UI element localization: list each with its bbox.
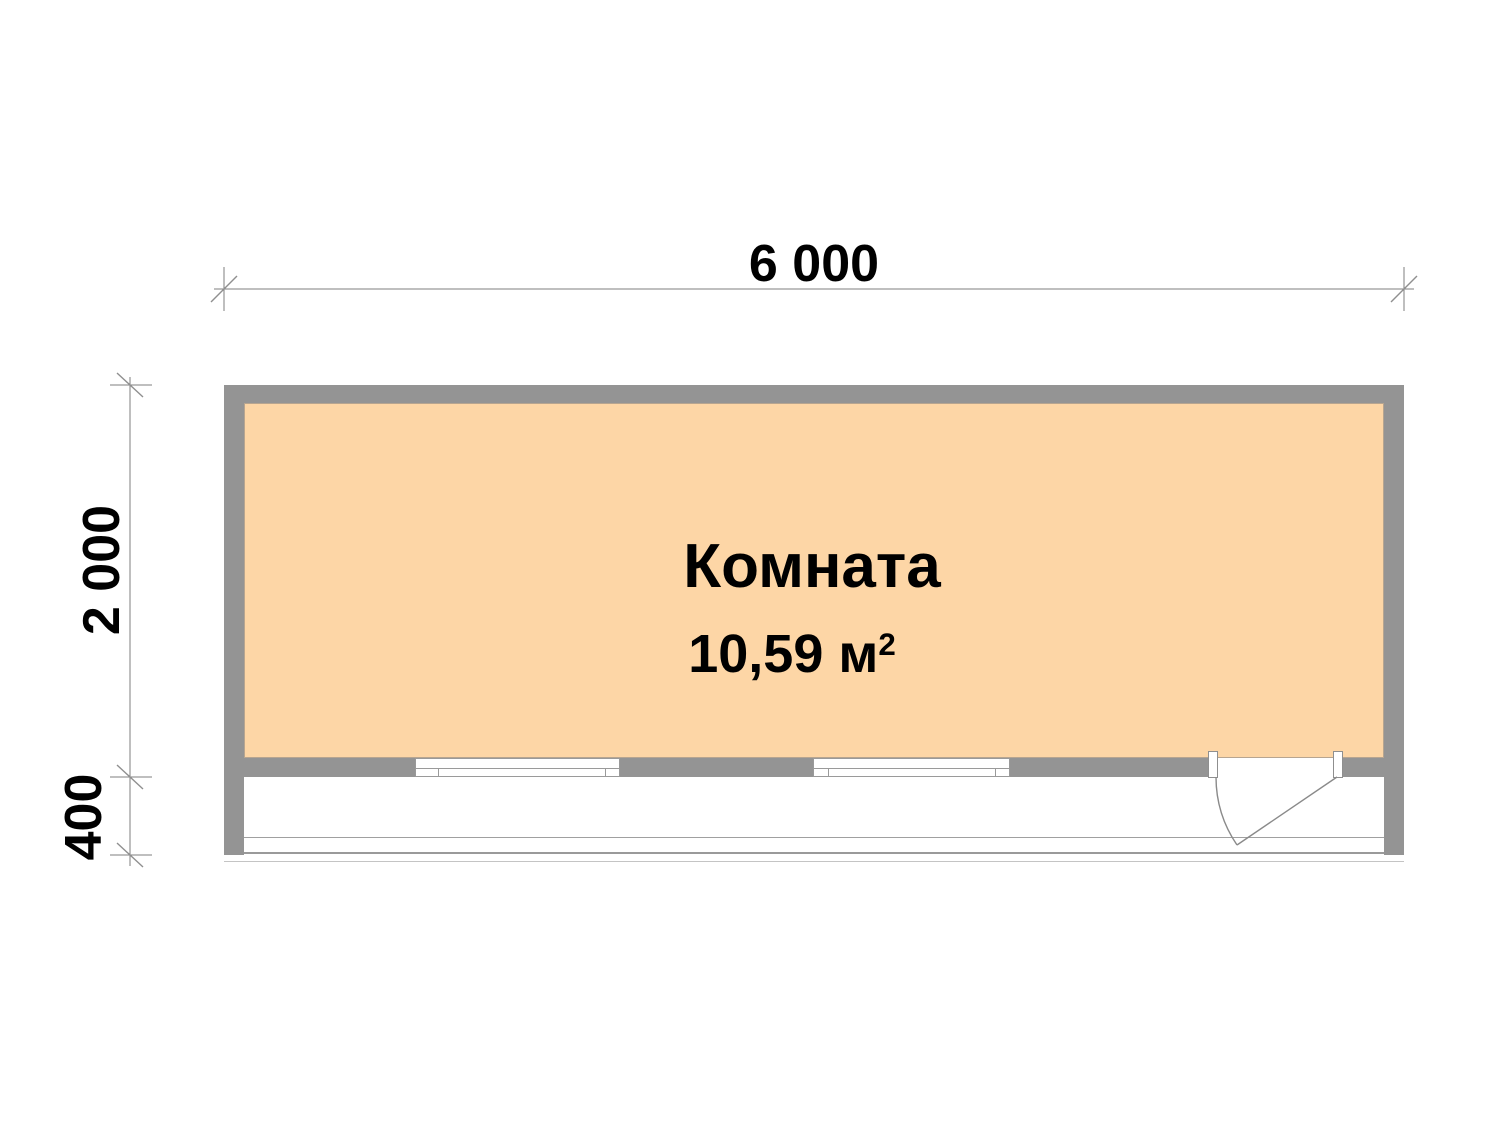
floor-plan-canvas: 6 000 2 000 400 Комната 10,59 м2 <box>0 0 1500 1125</box>
door-swing <box>1216 777 1337 845</box>
room-name-label: Комната <box>683 536 941 598</box>
room-area-superscript: 2 <box>878 627 895 662</box>
room-area-value: 10,59 м <box>688 624 878 684</box>
dimension-label-room-depth: 2 000 <box>76 505 128 635</box>
dimension-label-porch-depth: 400 <box>58 774 110 861</box>
dimension-label-total-width: 6 000 <box>749 238 879 290</box>
room-area-label: 10,59 м2 <box>688 627 896 681</box>
